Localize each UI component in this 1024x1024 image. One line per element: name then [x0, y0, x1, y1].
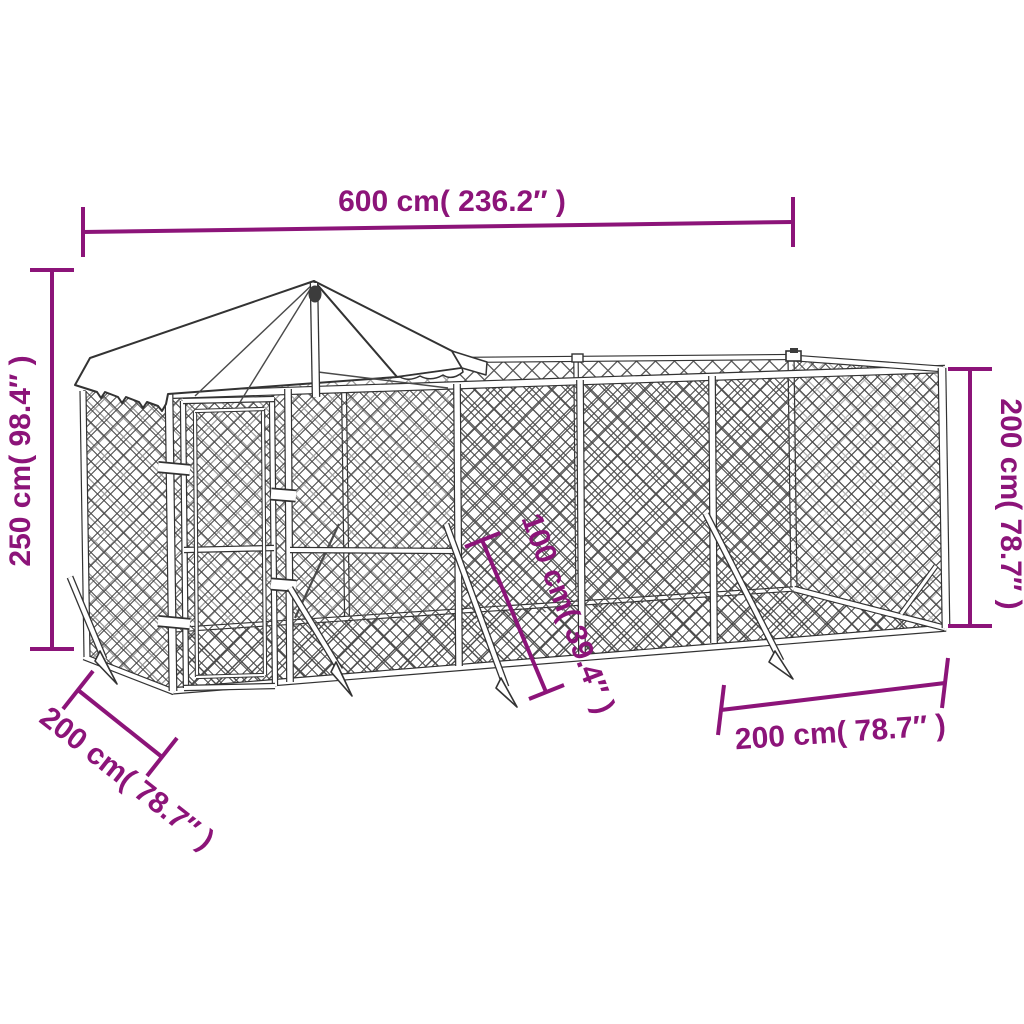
door-hinge-bottom — [158, 621, 190, 624]
door-hinge-top — [158, 467, 190, 470]
dim-label-depth-left: 200 cm( 78.7″ ) — [33, 701, 220, 857]
dim-label-length: 600 cm( 236.2″ ) — [338, 185, 566, 218]
post-cap-mid — [572, 354, 583, 362]
door-latch-upper — [271, 494, 296, 496]
door-latch-lower — [271, 584, 296, 586]
kennel-dimension-diagram: 600 cm( 236.2″ ) 250 cm( 98.4″ ) 200 cm(… — [0, 0, 1024, 1024]
dim-label-height-left: 250 cm( 98.4″ ) — [4, 355, 37, 566]
dim-line-height-right — [948, 369, 992, 626]
pole-cap — [309, 286, 322, 303]
kennel-diagram-canvas: 600 cm( 236.2″ ) 250 cm( 98.4″ ) 200 cm(… — [0, 0, 1024, 1024]
kennel-structure — [70, 281, 946, 707]
dim-label-height-right: 200 cm( 78.7″ ) — [994, 398, 1024, 609]
dim-label-width-right: 200 cm( 78.7″ ) — [734, 709, 947, 757]
corner-cap-back-right — [786, 348, 801, 361]
